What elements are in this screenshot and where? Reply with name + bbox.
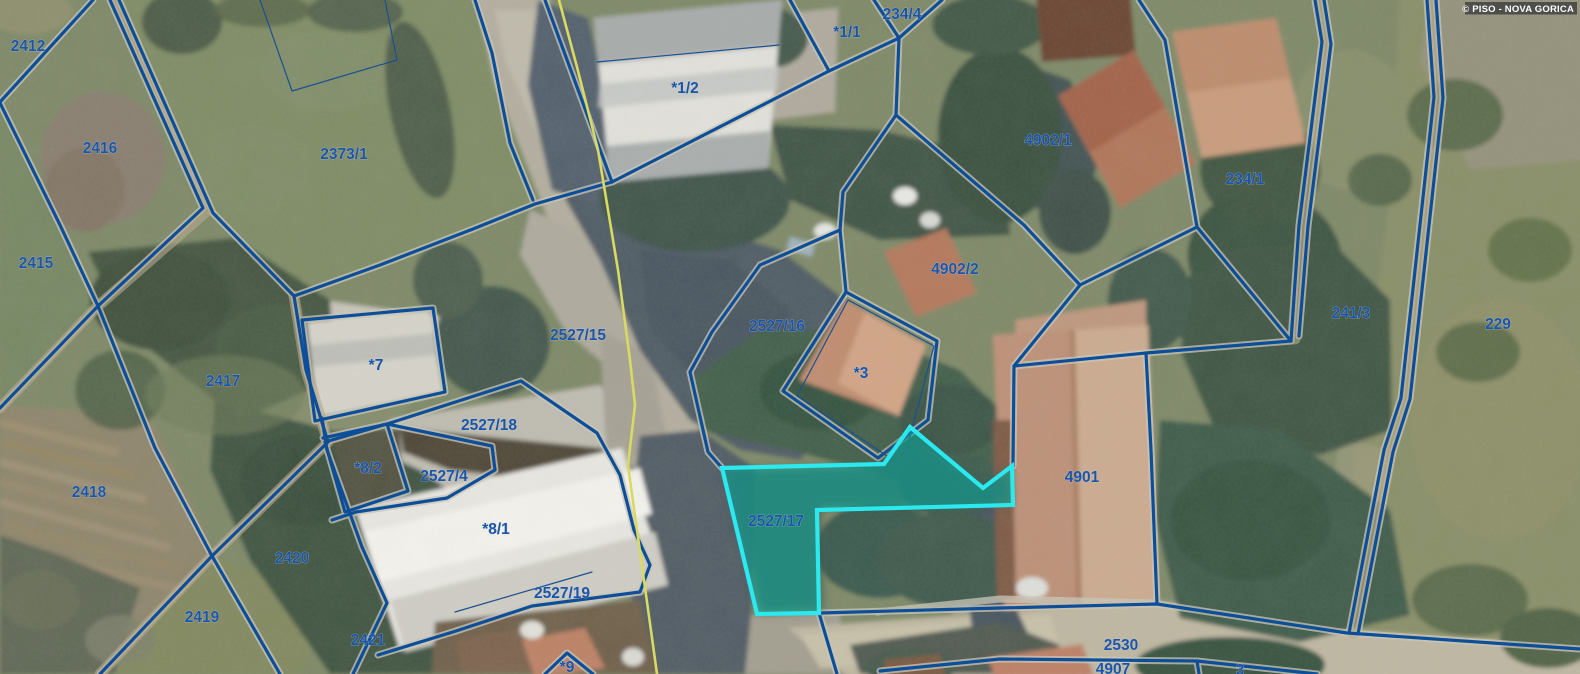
svg-text:*8/1: *8/1 [482, 521, 510, 538]
svg-text:234/1: 234/1 [1226, 171, 1265, 188]
svg-text:2530: 2530 [1104, 637, 1138, 654]
svg-text:*7: *7 [369, 357, 384, 374]
svg-text:2417: 2417 [206, 373, 240, 390]
svg-text:2527/17: 2527/17 [748, 513, 804, 530]
svg-text:4901: 4901 [1065, 469, 1100, 486]
svg-text:*3: *3 [854, 365, 869, 382]
svg-text:2527/18: 2527/18 [461, 417, 517, 434]
svg-text:2527/19: 2527/19 [534, 585, 590, 602]
svg-text:2373/1: 2373/1 [320, 146, 368, 163]
svg-text:© PISO - NOVA GORICA: © PISO - NOVA GORICA [1462, 4, 1574, 15]
svg-text:2416: 2416 [83, 140, 118, 157]
svg-text:2412: 2412 [11, 38, 45, 55]
svg-text:3: 3 [1236, 662, 1245, 674]
svg-text:2421: 2421 [351, 632, 386, 649]
svg-text:*1/1: *1/1 [833, 24, 861, 41]
svg-text:234/4: 234/4 [883, 6, 922, 23]
svg-text:4902/1: 4902/1 [1024, 132, 1072, 149]
svg-text:*9: *9 [560, 659, 575, 674]
svg-text:241/3: 241/3 [1332, 305, 1371, 322]
svg-text:229: 229 [1485, 316, 1511, 333]
svg-text:*1/2: *1/2 [671, 80, 699, 97]
svg-text:2419: 2419 [185, 609, 220, 626]
svg-text:4902/2: 4902/2 [931, 261, 978, 278]
svg-text:2527/16: 2527/16 [749, 318, 805, 335]
svg-text:4907: 4907 [1096, 661, 1130, 674]
svg-text:*8/2: *8/2 [354, 460, 382, 477]
svg-text:2420: 2420 [275, 550, 309, 567]
svg-text:2527/15: 2527/15 [550, 327, 606, 344]
svg-text:2418: 2418 [72, 484, 107, 501]
svg-text:2415: 2415 [19, 255, 54, 272]
svg-text:2527/4: 2527/4 [420, 468, 468, 485]
